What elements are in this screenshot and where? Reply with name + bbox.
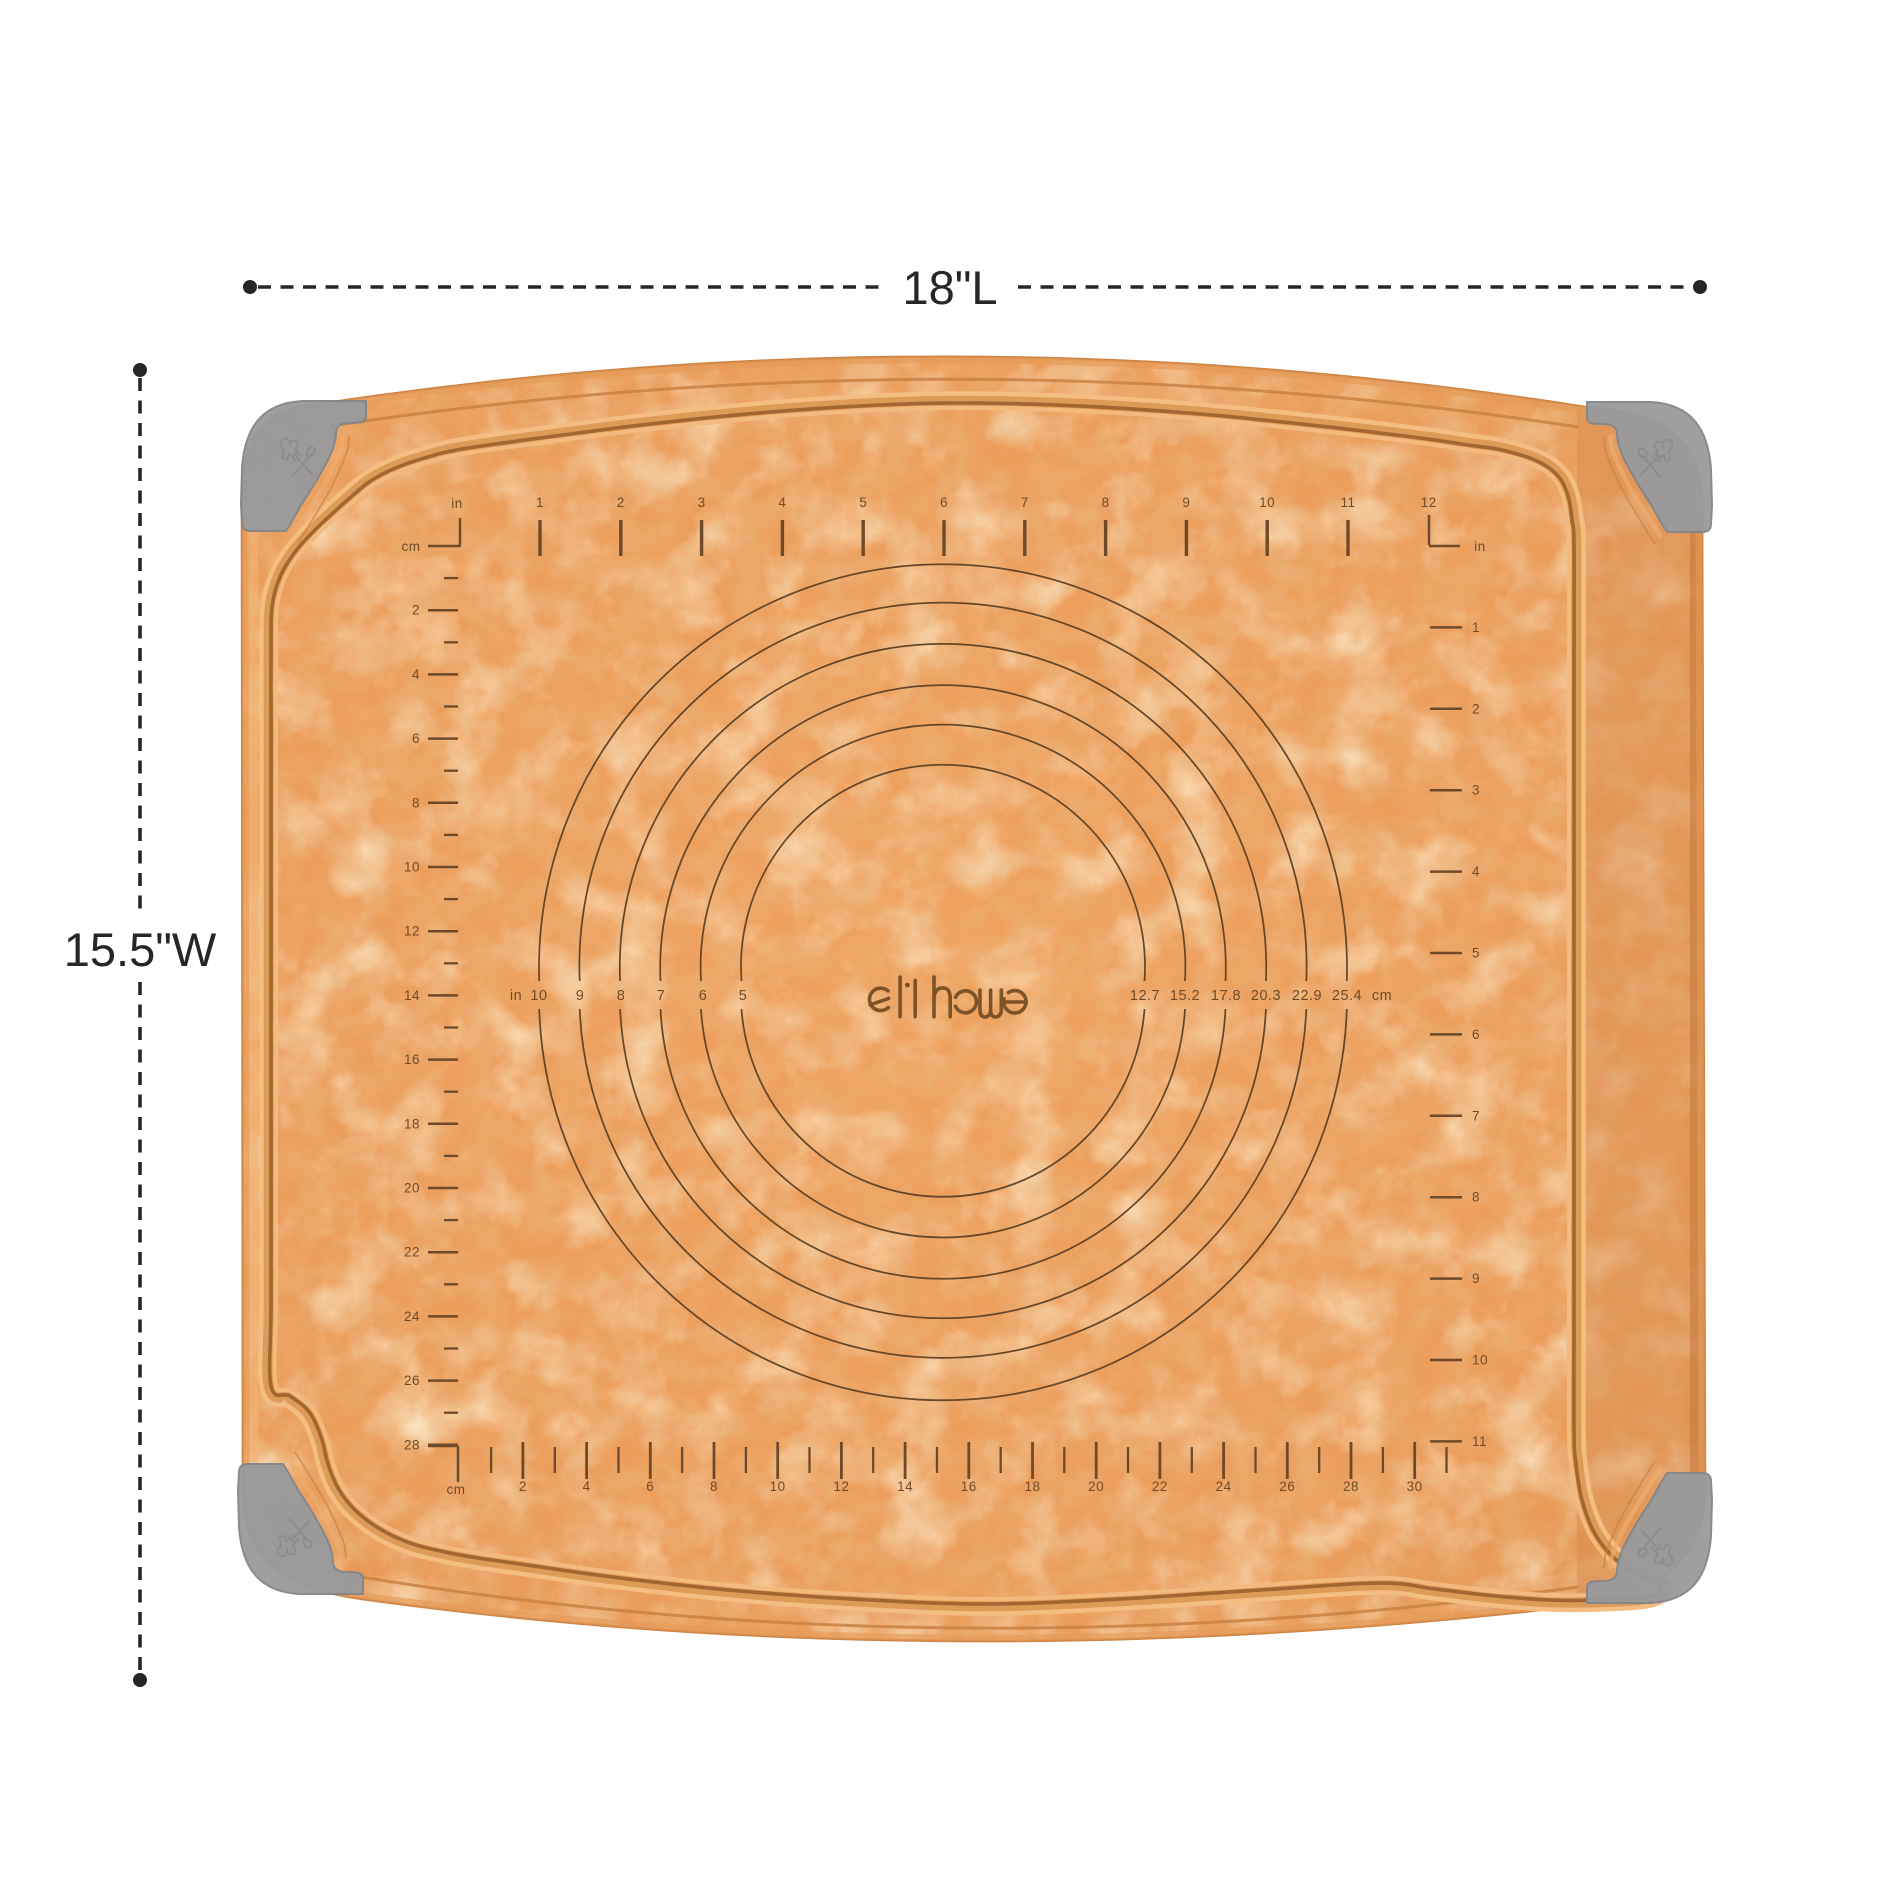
svg-text:15.5"W: 15.5"W [64, 923, 217, 976]
svg-text:22.9: 22.9 [1292, 988, 1322, 1004]
svg-text:12.7: 12.7 [1130, 988, 1160, 1004]
svg-text:16: 16 [961, 1479, 977, 1494]
svg-text:20.3: 20.3 [1251, 988, 1281, 1004]
svg-text:9: 9 [1182, 495, 1190, 510]
svg-text:1: 1 [536, 495, 544, 510]
svg-text:24: 24 [404, 1309, 420, 1324]
svg-text:5: 5 [1472, 946, 1480, 961]
svg-text:18: 18 [1024, 1479, 1040, 1494]
svg-text:12: 12 [404, 924, 420, 939]
svg-text:16: 16 [404, 1052, 420, 1067]
svg-text:4: 4 [412, 667, 420, 682]
svg-text:cm: cm [1372, 988, 1392, 1004]
svg-text:5: 5 [859, 495, 867, 510]
svg-text:20: 20 [1088, 1479, 1104, 1494]
svg-text:10: 10 [770, 1479, 786, 1494]
svg-text:4: 4 [1472, 864, 1480, 879]
svg-text:5: 5 [739, 988, 748, 1004]
svg-text:8: 8 [412, 795, 420, 810]
svg-text:25.4: 25.4 [1332, 988, 1362, 1004]
svg-text:6: 6 [646, 1479, 654, 1494]
svg-text:cm: cm [402, 539, 421, 554]
svg-text:10: 10 [530, 988, 547, 1004]
svg-text:26: 26 [404, 1373, 420, 1388]
svg-text:22: 22 [1152, 1479, 1168, 1494]
svg-text:cm: cm [447, 1482, 466, 1497]
svg-text:10: 10 [404, 860, 420, 875]
svg-text:8: 8 [710, 1479, 718, 1494]
svg-text:22: 22 [404, 1245, 420, 1260]
svg-text:28: 28 [404, 1437, 420, 1452]
svg-text:8: 8 [1102, 495, 1110, 510]
svg-text:1: 1 [1472, 620, 1480, 635]
svg-text:14: 14 [404, 988, 420, 1003]
svg-text:17.8: 17.8 [1211, 988, 1241, 1004]
svg-text:9: 9 [1472, 1271, 1480, 1286]
svg-text:9: 9 [576, 988, 585, 1004]
svg-text:6: 6 [412, 731, 420, 746]
svg-text:8: 8 [1472, 1190, 1480, 1205]
svg-text:6: 6 [699, 988, 708, 1004]
svg-text:in: in [510, 988, 522, 1004]
svg-text:2: 2 [519, 1479, 527, 1494]
svg-text:26: 26 [1279, 1479, 1295, 1494]
svg-text:24: 24 [1216, 1479, 1232, 1494]
svg-text:4: 4 [778, 495, 786, 510]
svg-text:6: 6 [940, 495, 948, 510]
svg-text:6: 6 [1472, 1027, 1480, 1042]
svg-text:2: 2 [1472, 701, 1480, 716]
svg-text:30: 30 [1407, 1479, 1423, 1494]
svg-text:18: 18 [404, 1116, 420, 1131]
svg-text:7: 7 [1021, 495, 1029, 510]
svg-text:7: 7 [1472, 1108, 1480, 1123]
svg-text:14: 14 [897, 1479, 913, 1494]
svg-text:28: 28 [1343, 1479, 1359, 1494]
svg-text:2: 2 [617, 495, 625, 510]
svg-text:15.2: 15.2 [1170, 988, 1200, 1004]
svg-text:12: 12 [1421, 495, 1437, 510]
svg-text:8: 8 [617, 988, 626, 1004]
svg-text:11: 11 [1340, 495, 1355, 510]
svg-text:18"L: 18"L [902, 261, 997, 314]
svg-text:10: 10 [1472, 1353, 1488, 1368]
svg-text:3: 3 [1472, 783, 1480, 798]
svg-text:in: in [451, 496, 463, 511]
svg-text:3: 3 [698, 495, 706, 510]
svg-text:11: 11 [1472, 1434, 1487, 1449]
svg-text:in: in [1474, 539, 1486, 554]
svg-text:20: 20 [404, 1181, 420, 1196]
svg-text:7: 7 [657, 988, 666, 1004]
svg-text:4: 4 [583, 1479, 591, 1494]
svg-text:10: 10 [1259, 495, 1275, 510]
svg-text:2: 2 [412, 603, 420, 618]
svg-text:12: 12 [833, 1479, 849, 1494]
